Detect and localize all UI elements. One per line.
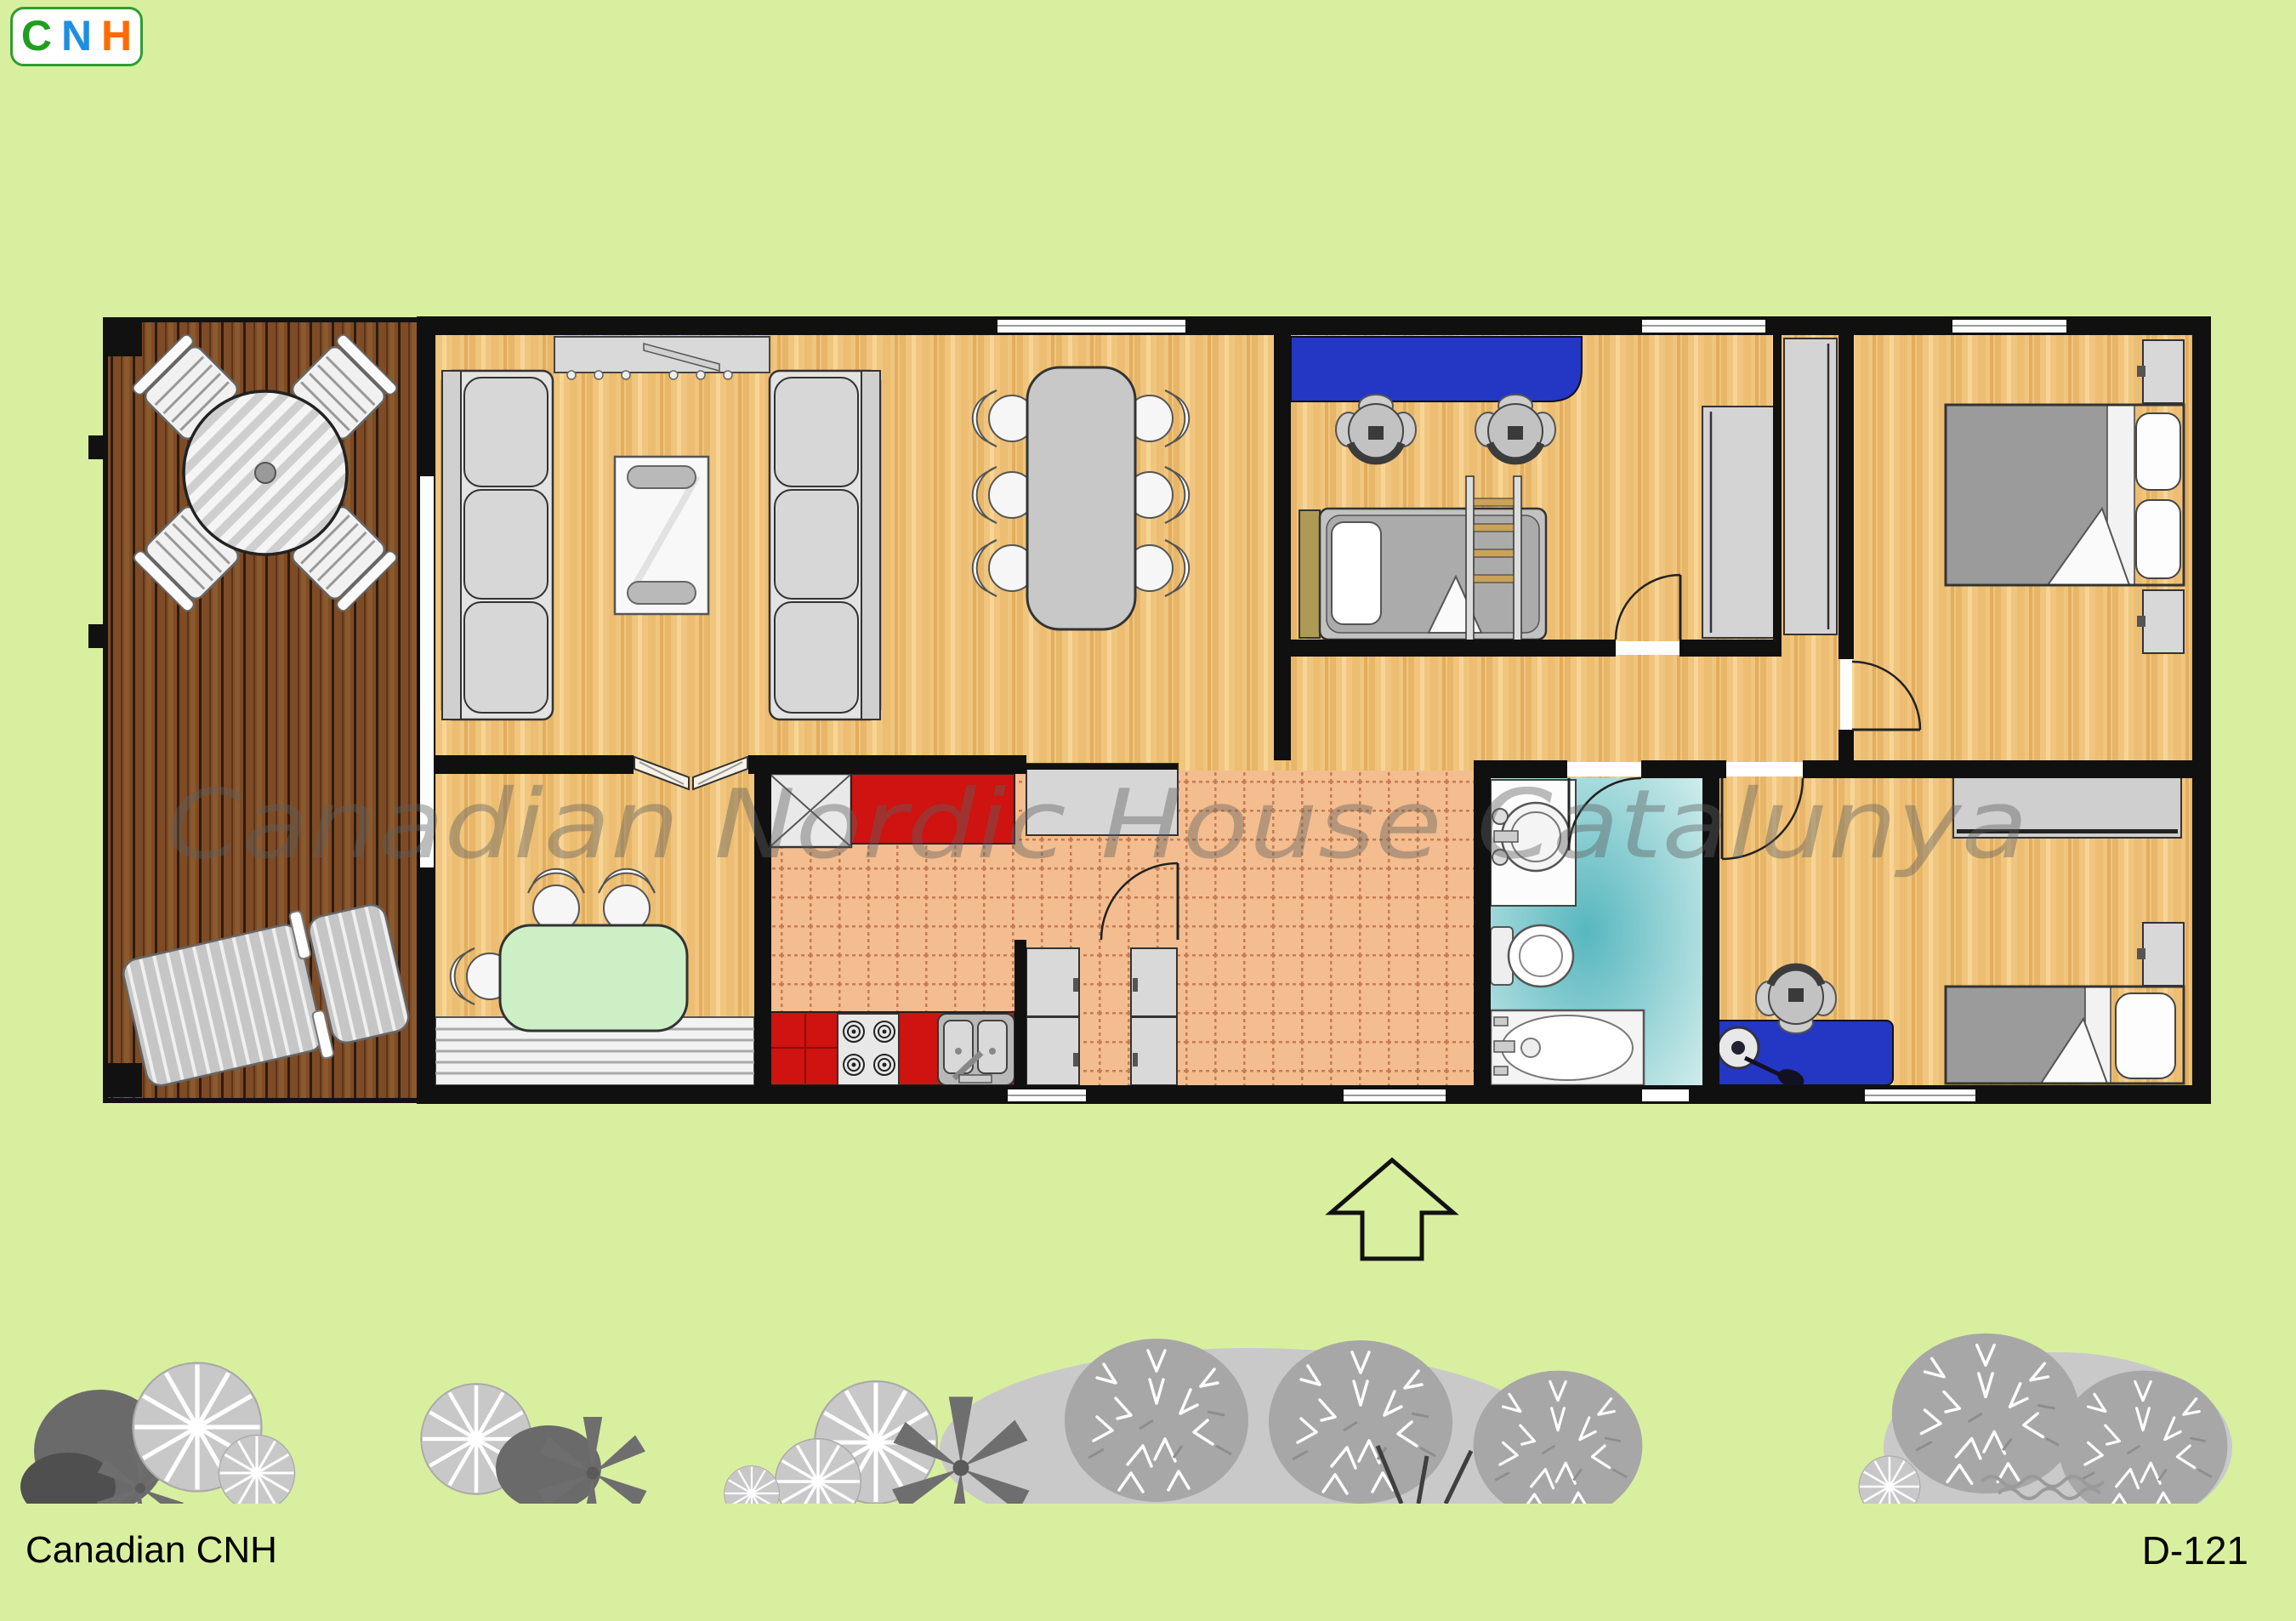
door-opening bbox=[1616, 641, 1679, 655]
window-icon bbox=[1865, 1089, 1975, 1101]
closet-icon bbox=[1702, 407, 1774, 638]
tree-cluster-left bbox=[20, 1362, 295, 1533]
deck-pillar bbox=[108, 1063, 142, 1097]
entrance-arrow-icon bbox=[1331, 1160, 1453, 1259]
toilet-icon bbox=[1491, 925, 1573, 987]
fridge-freezer-icon bbox=[1026, 948, 1079, 1085]
single-bed-icon bbox=[1946, 987, 2184, 1084]
desk-icon bbox=[1291, 337, 1582, 401]
window-icon bbox=[1642, 1089, 1689, 1101]
landscaping bbox=[20, 1334, 2232, 1552]
dining-table-icon bbox=[1027, 367, 1135, 629]
stove-icon bbox=[838, 1014, 899, 1085]
nightstand-icon bbox=[2137, 590, 2184, 653]
entrance-opening bbox=[1344, 1089, 1446, 1101]
logo-letter: H bbox=[101, 14, 132, 57]
logo-letter: N bbox=[61, 14, 92, 57]
bathtub-icon bbox=[1491, 1010, 1644, 1085]
deck-pillar bbox=[108, 322, 142, 356]
floor-plan: Canadian Nordic House Catalunya bbox=[0, 0, 2296, 1621]
watermark-text: Canadian Nordic House Catalunya bbox=[166, 770, 2028, 880]
tree-cluster-right bbox=[1859, 1334, 2232, 1543]
tree-cluster-center bbox=[725, 1339, 1643, 1552]
cnh-logo: CNH bbox=[10, 7, 143, 66]
page: Canadian Nordic House Catalunya bbox=[0, 0, 2296, 1621]
coffee-table-icon bbox=[615, 457, 708, 614]
window-icon bbox=[1642, 320, 1765, 333]
window-icon bbox=[997, 320, 1185, 333]
hall-cabinet2-icon bbox=[1131, 948, 1177, 1085]
dining-area bbox=[973, 367, 1189, 629]
deck-post bbox=[88, 435, 107, 459]
window-icon bbox=[1952, 320, 2066, 333]
hall-closet-icon bbox=[1784, 338, 1837, 634]
logo-letter: C bbox=[21, 14, 52, 57]
double-sink-icon bbox=[938, 1014, 1014, 1085]
door-opening bbox=[1840, 659, 1852, 730]
sofa-icon bbox=[442, 371, 553, 719]
plan-code: D-121 bbox=[2142, 1527, 2248, 1573]
nightstand-icon bbox=[2137, 923, 2184, 986]
window-icon bbox=[1008, 1089, 1086, 1101]
company-name: Canadian CNH bbox=[26, 1529, 277, 1572]
deck-post bbox=[88, 624, 107, 648]
tree-cluster-midleft bbox=[421, 1384, 646, 1529]
sofa-icon bbox=[770, 371, 880, 719]
nook-table-icon bbox=[500, 925, 687, 1031]
nightstand-icon bbox=[2137, 340, 2184, 403]
